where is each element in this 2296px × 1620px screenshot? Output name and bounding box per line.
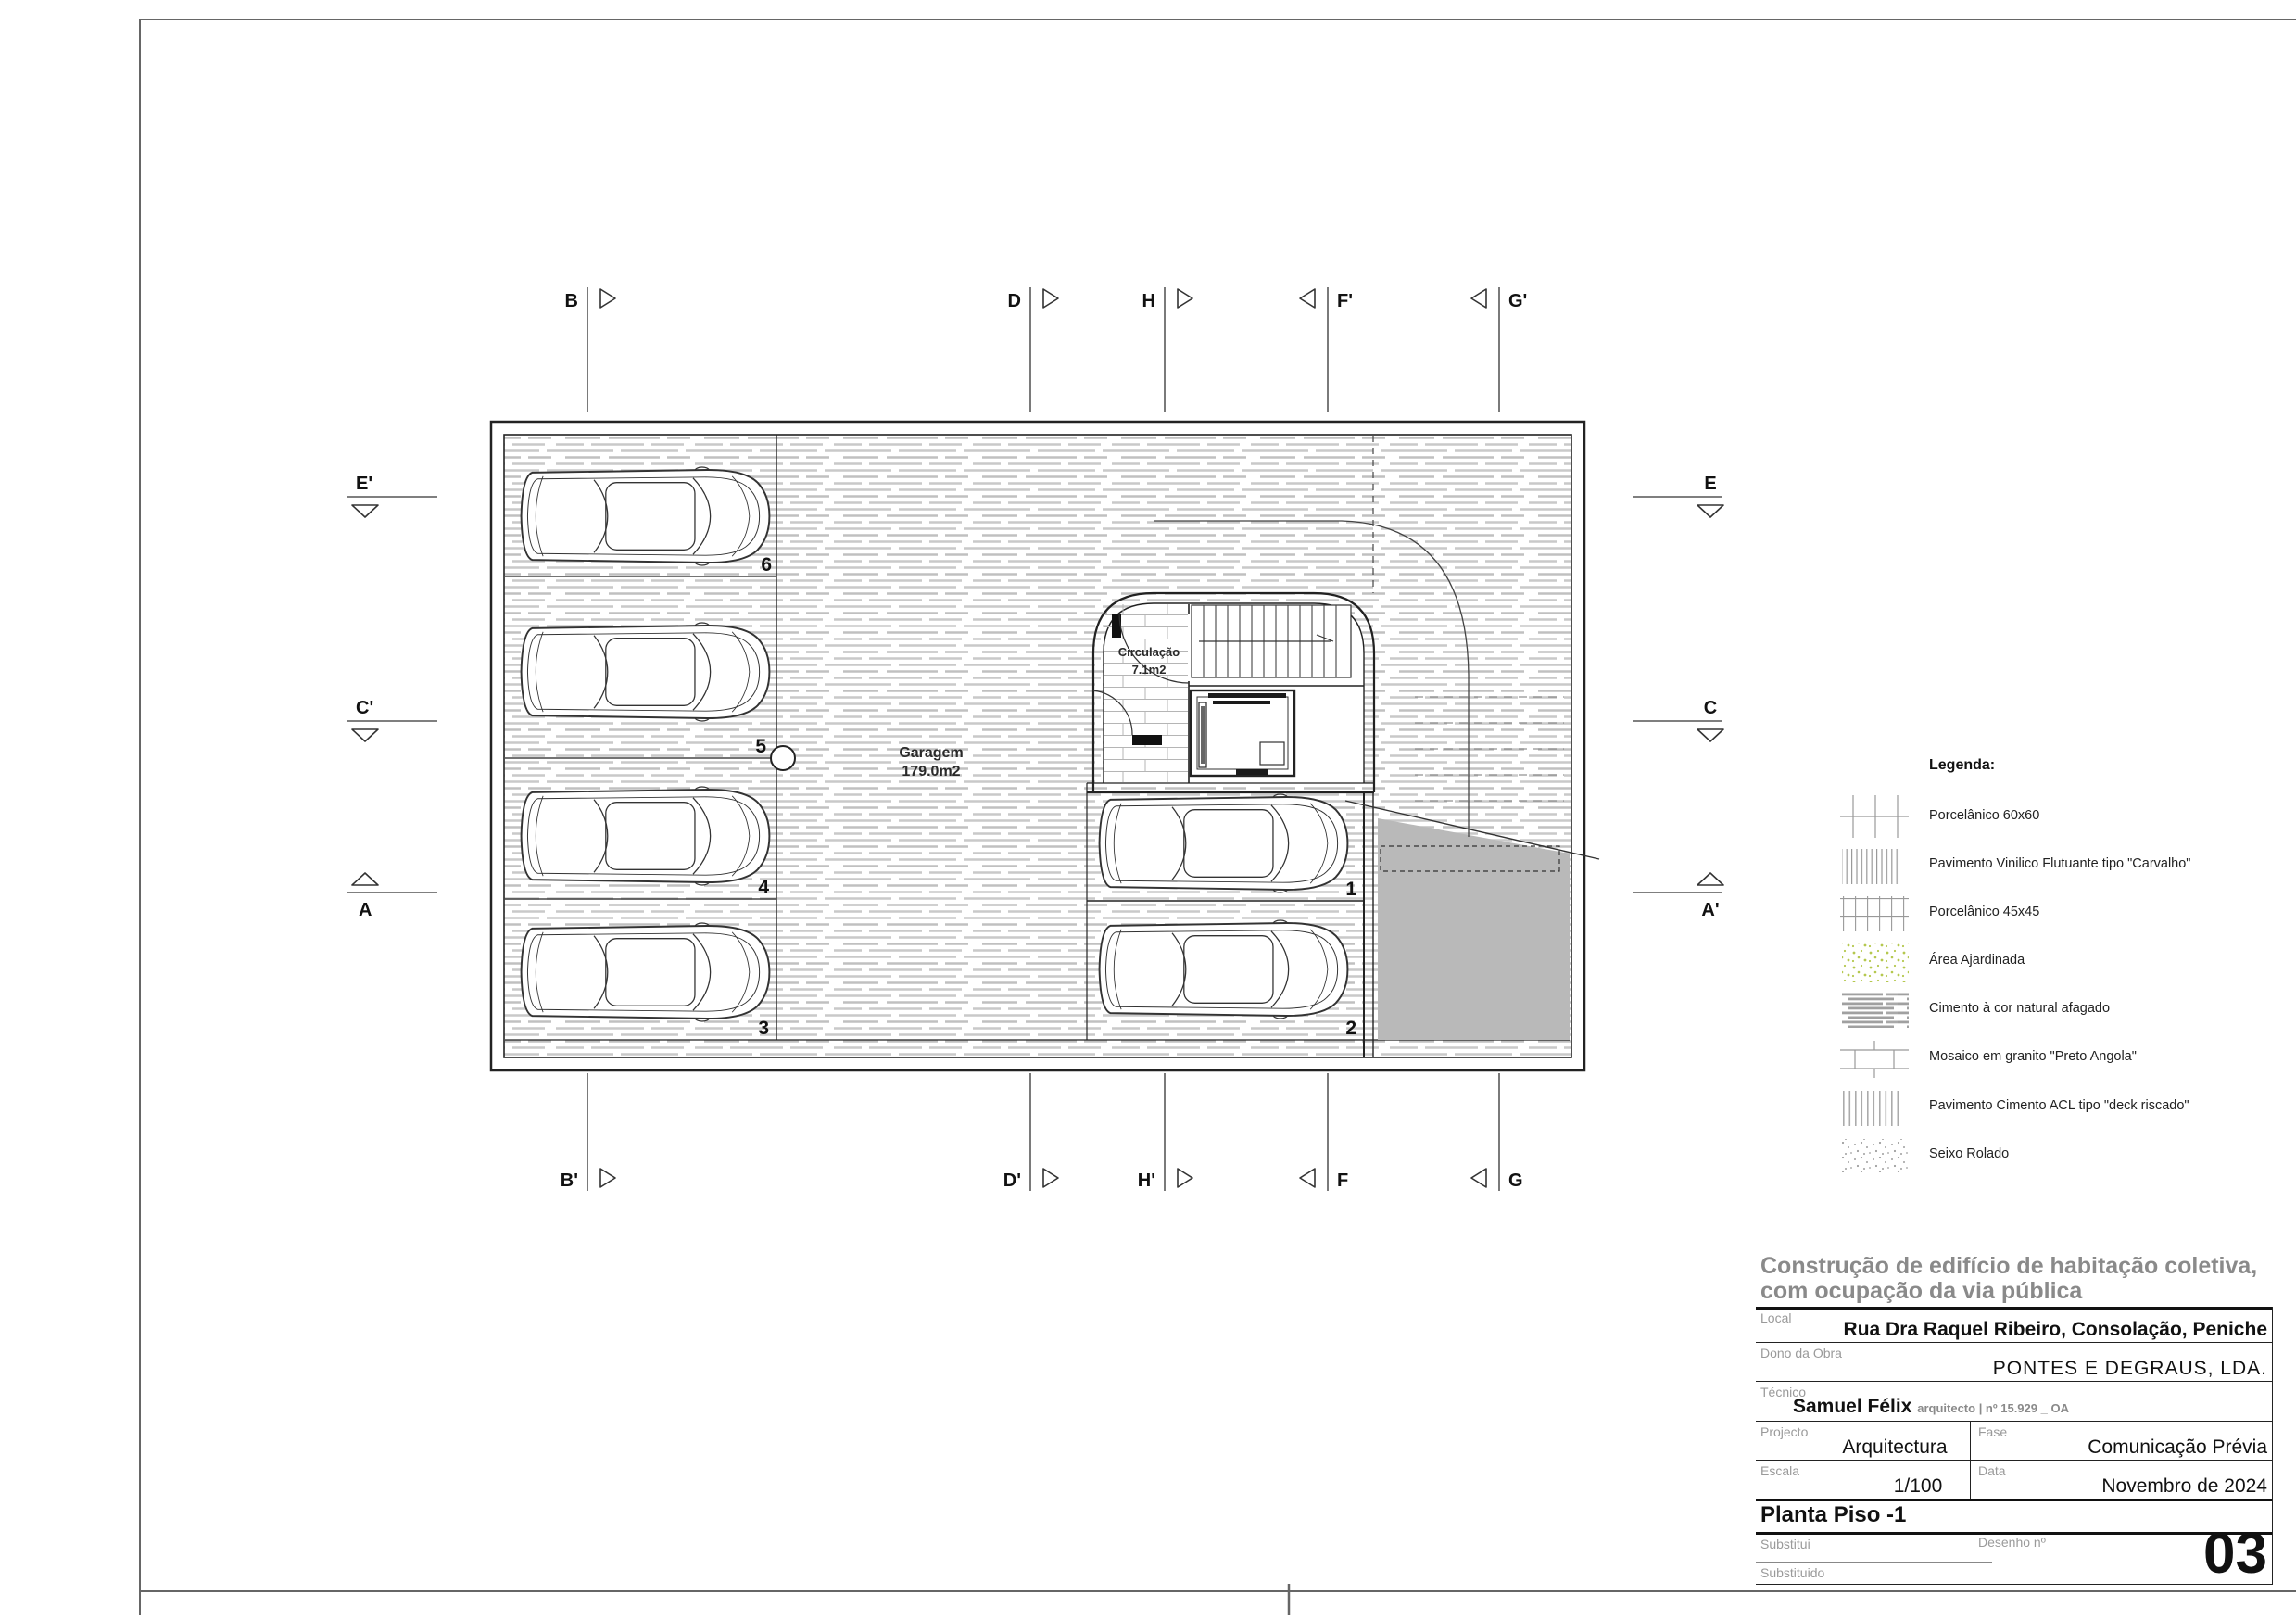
legend-item-label: Área Ajardinada <box>1929 952 2025 968</box>
section-marker-b: B <box>565 287 615 412</box>
stair-core <box>1087 593 1374 792</box>
svg-text:D': D' <box>1003 1171 1021 1191</box>
desenho-numero-label: Desenho nº <box>1978 1535 2046 1550</box>
divider <box>1756 1421 2273 1422</box>
divider <box>1756 1342 2273 1343</box>
project-title-line2: com ocupação da via pública <box>1760 1278 2082 1304</box>
svg-text:A': A' <box>1701 900 1719 920</box>
car-top-view <box>1100 920 1348 1019</box>
section-marker-d: D <box>1008 287 1058 412</box>
legend-item-label: Pavimento Cimento ACL tipo "deck riscado… <box>1929 1098 2189 1113</box>
svg-text:G: G <box>1508 1171 1523 1191</box>
projecto-label: Projecto <box>1760 1424 1808 1439</box>
svg-text:B: B <box>565 291 578 311</box>
garage-name-label: Garagem <box>899 745 963 761</box>
svg-text:B': B' <box>561 1171 578 1191</box>
gray-speckle-swatch <box>1842 1139 1909 1172</box>
desenho-numero-value: 03 <box>2203 1526 2267 1582</box>
section-marker-e-prime: E' <box>347 474 437 517</box>
svg-text:D: D <box>1008 291 1021 311</box>
divider <box>1756 1460 2273 1461</box>
stall-number-4: 4 <box>758 877 769 898</box>
car-top-view <box>522 923 770 1021</box>
section-marker-f: F <box>1300 1073 1348 1191</box>
architectural-drawing-sheet: 6 5 4 3 1 2 Garagem 179.0m2 Circulação 7… <box>0 0 2296 1615</box>
car-top-view <box>522 787 770 885</box>
section-marker-g: G <box>1471 1073 1523 1191</box>
svg-text:H: H <box>1142 291 1155 311</box>
legend-item-label: Mosaico em granito "Preto Angola" <box>1929 1049 2137 1064</box>
car-top-view <box>522 623 770 721</box>
legend-item-label: Pavimento Vinilico Flutuante tipo "Carva… <box>1929 856 2190 871</box>
stall-number-3: 3 <box>758 1018 769 1039</box>
structural-column <box>771 746 795 770</box>
substitui-label: Substitui <box>1760 1537 1810 1551</box>
title-block-column-divider <box>1970 1421 1971 1499</box>
local-value: Rua Dra Raquel Ribeiro, Consolação, Peni… <box>1760 1319 2267 1341</box>
fase-value: Comunicação Prévia <box>1978 1436 2267 1459</box>
gray-vertical-lines-swatch <box>1842 1091 1901 1126</box>
horizontal-strokes-swatch <box>1842 993 1909 1028</box>
vertical-lines-swatch <box>1842 849 1901 884</box>
section-marker-e: E <box>1633 474 1723 517</box>
circulation-area-label: 7.1m2 <box>1132 663 1167 677</box>
green-speckle-swatch <box>1842 943 1909 982</box>
drawing-name: Planta Piso -1 <box>1760 1502 1906 1528</box>
section-marker-h: H <box>1142 287 1192 412</box>
stall-number-1: 1 <box>1345 879 1356 900</box>
section-marker-g-prime: G' <box>1471 287 1527 412</box>
section-marker-h2: H' <box>1138 1073 1192 1191</box>
escala-label: Escala <box>1760 1463 1799 1478</box>
ramp-area <box>1378 818 1570 1040</box>
stall-number-6: 6 <box>761 554 772 576</box>
tecnico-credentials: arquitecto | nº 15.929 _ OA <box>1917 1401 2069 1415</box>
divider <box>1756 1499 2273 1501</box>
section-marker-f-prime: F' <box>1300 287 1353 412</box>
data-value: Novembro de 2024 <box>1978 1475 2267 1498</box>
title-block: Construção de edifício de habitação cole… <box>1756 1254 2273 1589</box>
car-top-view <box>1100 794 1348 892</box>
svg-text:F: F <box>1337 1171 1348 1191</box>
section-marker-c-prime: C' <box>347 698 437 741</box>
floor-plan: 6 5 4 3 1 2 Garagem 179.0m2 Circulação 7… <box>491 422 1599 1070</box>
elevator <box>1191 690 1294 776</box>
substitui-line <box>1756 1562 1992 1563</box>
svg-text:C: C <box>1704 698 1717 718</box>
legend-item-label: Porcelânico 45x45 <box>1929 905 2039 919</box>
svg-text:A: A <box>359 900 372 920</box>
svg-text:H': H' <box>1138 1171 1155 1191</box>
section-marker-a-prime: A' <box>1633 873 1723 920</box>
tecnico-name: Samuel Félix <box>1793 1396 1911 1417</box>
legend-title: Legenda: <box>1929 757 1995 773</box>
garage-area-label: 179.0m2 <box>902 764 960 779</box>
grid-45x45-swatch <box>1840 896 1909 931</box>
tecnico-value: Samuel Félix arquitecto | nº 15.929 _ OA <box>1793 1396 2069 1418</box>
project-title-line1: Construção de edifício de habitação cole… <box>1760 1253 2257 1279</box>
dono-da-obra-value: PONTES E DEGRAUS, LDA. <box>1760 1358 2267 1380</box>
section-marker-a: A <box>347 873 437 920</box>
svg-text:E: E <box>1704 474 1716 494</box>
projecto-value: Arquitectura <box>1802 1436 1987 1459</box>
svg-text:C': C' <box>356 698 373 718</box>
title-block-right-border <box>2272 1307 2273 1584</box>
car-top-view <box>522 467 770 565</box>
substituido-label: Substituido <box>1760 1565 1824 1580</box>
section-marker-b2: B' <box>561 1073 615 1191</box>
brick-swatch <box>1840 1041 1909 1078</box>
legend-item-label: Porcelânico 60x60 <box>1929 808 2039 823</box>
section-marker-c: C <box>1633 698 1723 741</box>
stall-number-5: 5 <box>755 736 766 757</box>
grid-60x60-swatch <box>1840 795 1909 838</box>
svg-text:G': G' <box>1508 291 1527 311</box>
stall-number-2: 2 <box>1345 1018 1356 1039</box>
divider <box>1756 1584 2273 1585</box>
divider <box>1756 1307 2273 1310</box>
legend-item-label: Seixo Rolado <box>1929 1146 2009 1161</box>
svg-text:E': E' <box>356 474 372 494</box>
project-title: Construção de edifício de habitação cole… <box>1760 1254 2273 1304</box>
legend-item-label: Cimento à cor natural afagado <box>1929 1001 2110 1016</box>
divider <box>1756 1381 2273 1382</box>
circulation-name-label: Circulação <box>1118 645 1180 659</box>
svg-text:F': F' <box>1337 291 1353 311</box>
legend: Legenda: Porcelânico 60x60 Pavimento Vin… <box>1840 757 2190 1172</box>
section-marker-d2: D' <box>1003 1073 1058 1191</box>
